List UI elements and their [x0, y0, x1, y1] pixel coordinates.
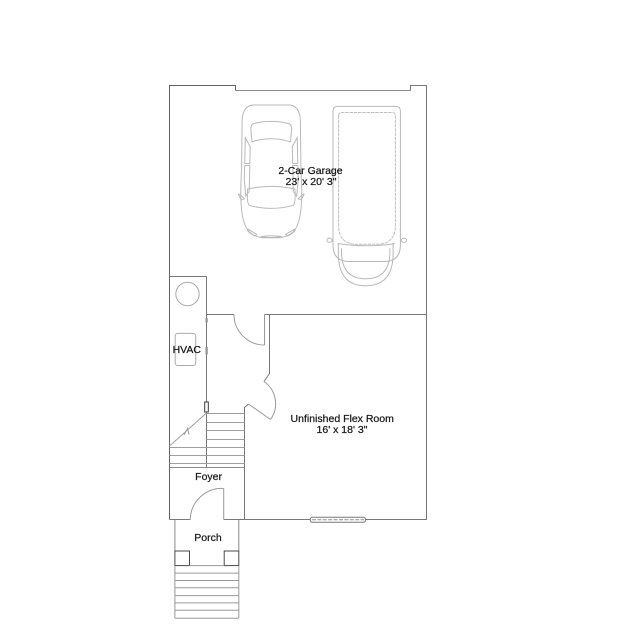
svg-text:Porch: Porch	[194, 532, 222, 544]
svg-text:16' x 18' 3": 16' x 18' 3"	[317, 424, 368, 436]
svg-text:HVAC: HVAC	[173, 344, 202, 356]
svg-text:23' x 20' 3": 23' x 20' 3"	[286, 176, 337, 188]
svg-text:Foyer: Foyer	[195, 471, 222, 483]
